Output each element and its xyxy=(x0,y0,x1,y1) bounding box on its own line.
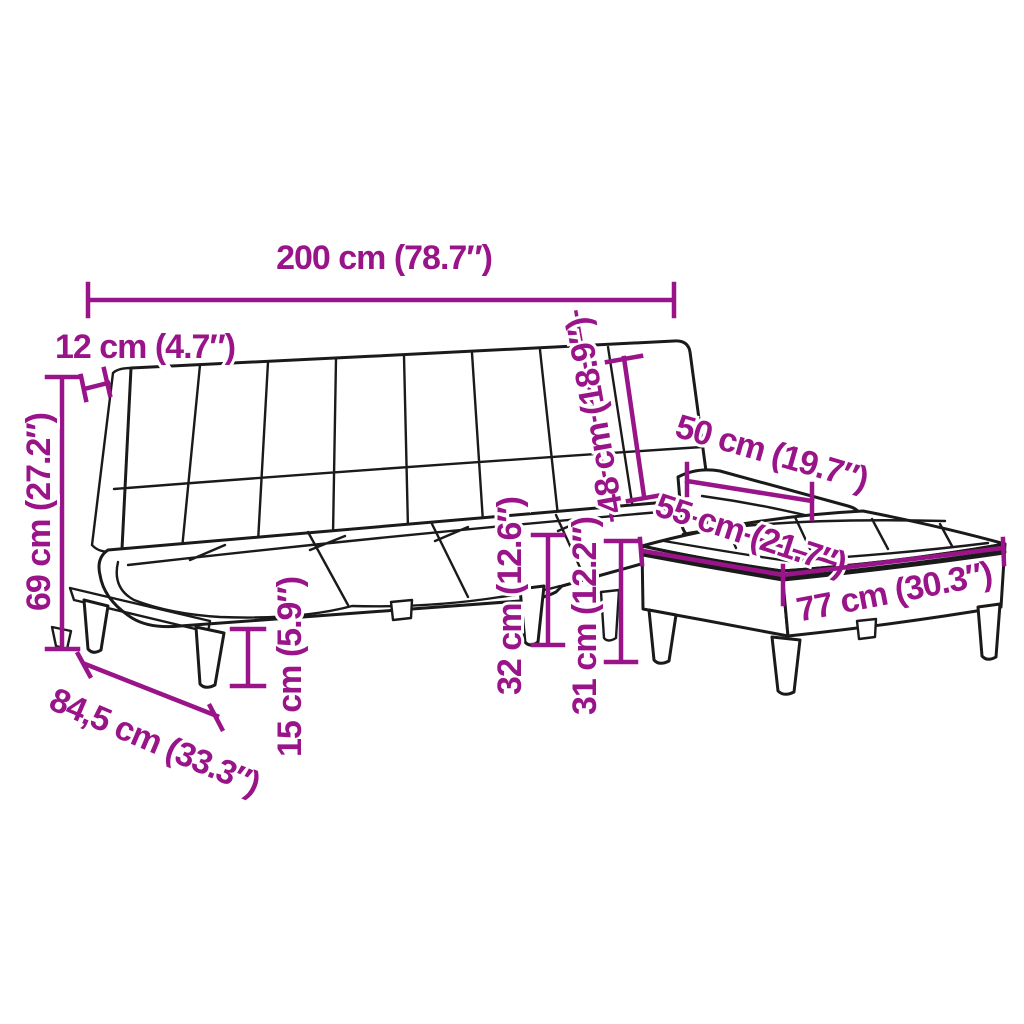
dim-seat-depth: 84,5 cm (33.3″) xyxy=(44,654,265,803)
dim-leg-height-line xyxy=(232,629,264,686)
dim-seat-depth-label: 84,5 cm (33.3″) xyxy=(44,681,265,804)
sofa-dimension-diagram: 200 cm (78.7″) 12 cm (4.7″) 69 cm (27.2″… xyxy=(0,0,1024,1024)
dim-backrest-thickness-line xyxy=(81,369,110,400)
dim-footstool-height-label: 31 cm (12.2″) xyxy=(566,517,604,715)
sofa-front-left-leg xyxy=(84,600,108,652)
footstool-left-leg xyxy=(649,610,676,663)
footstool-right-leg xyxy=(978,604,1000,659)
dim-overall-height-label: 69 cm (27.2″) xyxy=(20,413,58,611)
dim-leg-height-label: 15 cm (5.9″) xyxy=(271,577,309,757)
diagram-canvas: 200 cm (78.7″) 12 cm (4.7″) 69 cm (27.2″… xyxy=(0,0,1024,1024)
dim-total-width: 200 cm (78.7″) xyxy=(88,239,674,316)
dim-seat-height-label: 32 cm (12.6″) xyxy=(491,497,529,695)
dim-total-width-label: 200 cm (78.7″) xyxy=(276,239,492,277)
sofa-left-leg xyxy=(196,627,224,687)
dim-overall-height: 69 cm (27.2″) xyxy=(20,377,78,649)
footstool-rear-leg xyxy=(857,619,876,639)
dim-backrest-thickness-label: 12 cm (4.7″) xyxy=(55,328,235,366)
dim-total-width-line xyxy=(88,284,674,316)
sofa-mid-rear-leg xyxy=(391,600,412,620)
footstool-front-leg xyxy=(772,637,800,694)
